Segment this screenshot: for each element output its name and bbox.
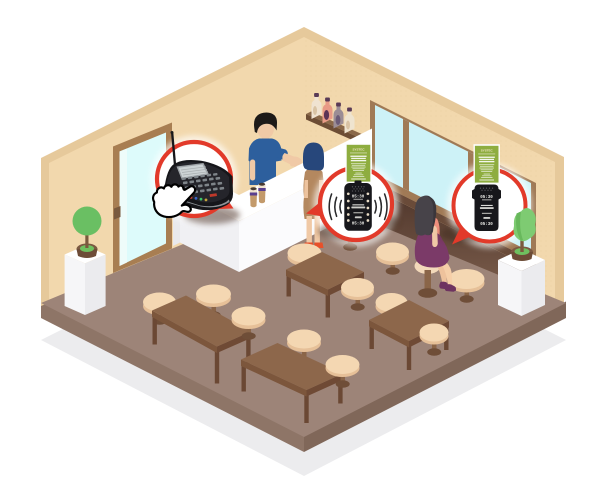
svg-text:05:30: 05:30 (480, 223, 493, 227)
svg-text:05:30: 05:30 (352, 223, 365, 227)
svg-text:SYSTEC: SYSTEC (352, 148, 365, 152)
svg-text:SYSTEC: SYSTEC (481, 149, 494, 153)
